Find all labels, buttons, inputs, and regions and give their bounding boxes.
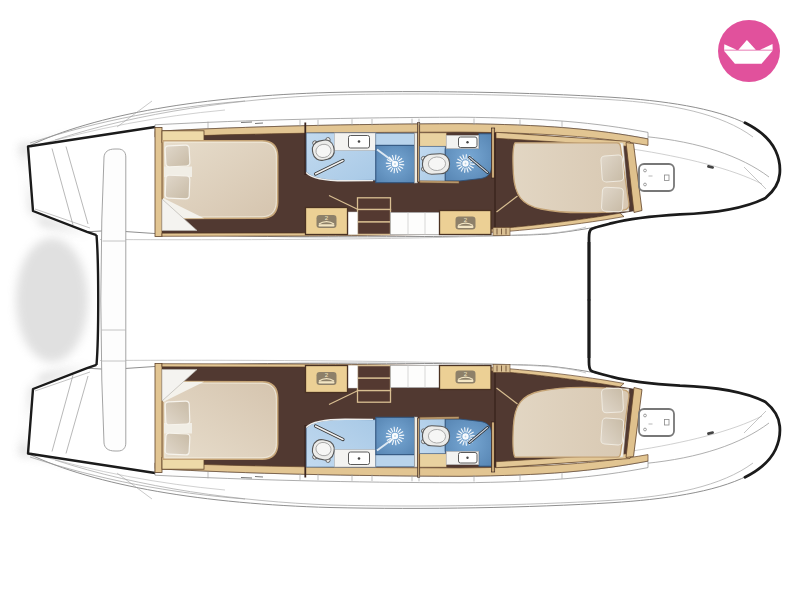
svg-text:2: 2: [325, 371, 329, 378]
svg-text:2: 2: [464, 370, 468, 377]
svg-text:2: 2: [464, 216, 468, 223]
svg-text:2: 2: [325, 214, 329, 221]
